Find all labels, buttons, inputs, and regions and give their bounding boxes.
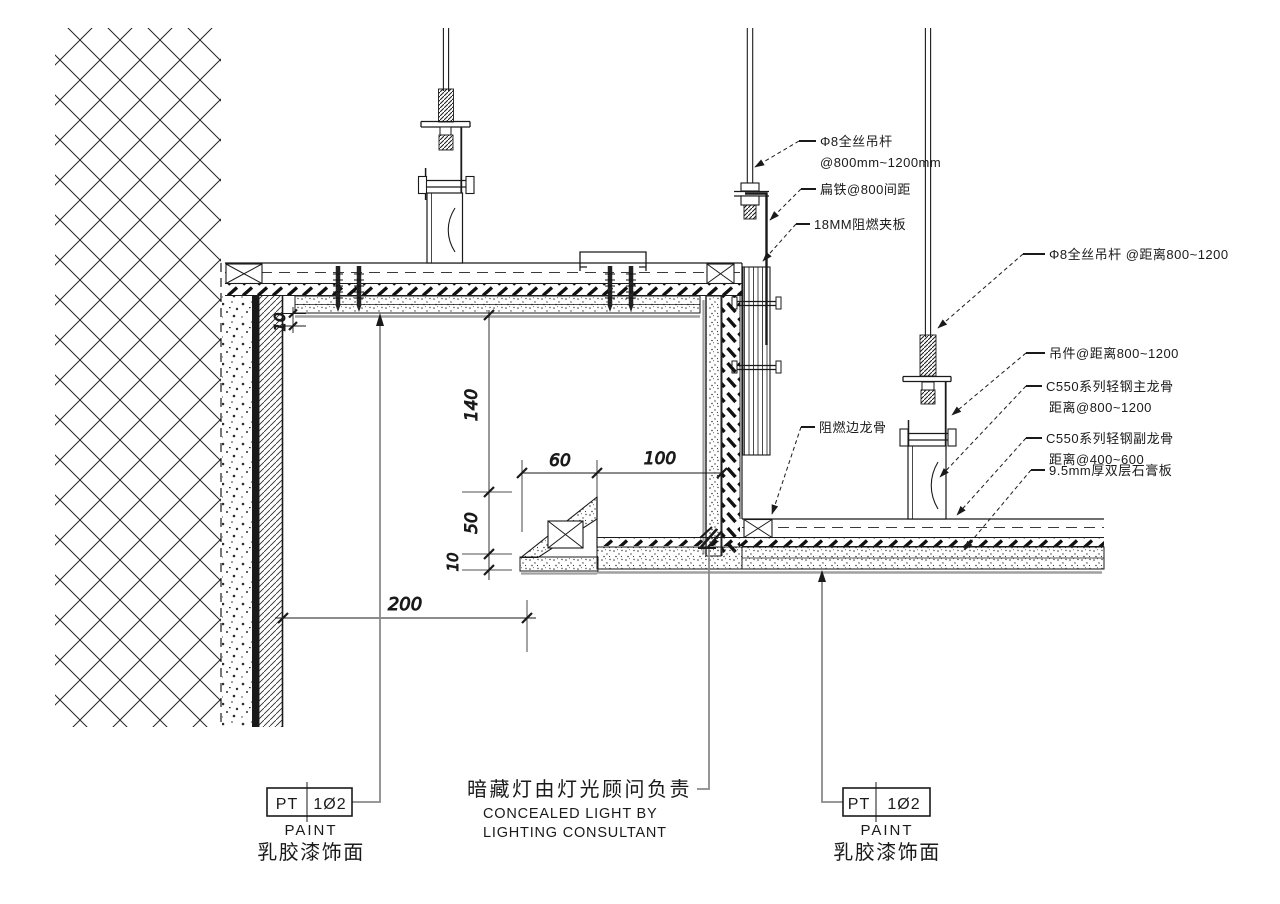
drawing-canvas: 10 140 50 10 60 100 200 — [0, 0, 1280, 904]
render-layer — [259, 296, 282, 727]
ceiling-detail-drawing: 10 140 50 10 60 100 200 — [0, 0, 1280, 904]
plaster-layer — [222, 296, 252, 727]
tag-leader — [822, 582, 843, 802]
note-en-2: LIGHTING CONSULTANT — [483, 825, 667, 841]
tag-label-en: PAINT — [284, 822, 337, 839]
shelf-board — [597, 547, 742, 569]
furring-keel-row — [225, 284, 742, 295]
tag-label-cn: 乳胶漆饰面 — [833, 841, 941, 864]
dim-text-10: 10 — [444, 552, 462, 571]
plywood-panel — [743, 267, 770, 455]
callout-text: C550系列轻钢副龙骨 — [1046, 431, 1174, 446]
callout-text: 18MM阻燃夹板 — [814, 217, 906, 232]
bulkhead-board — [706, 296, 721, 556]
callout-rod-right: Φ8全丝吊杆 @距离800~1200 — [938, 247, 1229, 328]
callout-text: 阻燃边龙骨 — [819, 420, 887, 435]
thread-stub — [439, 135, 453, 150]
callout-text: 距离@800~1200 — [1049, 400, 1152, 415]
thread-stub — [921, 390, 935, 404]
threaded-section — [920, 335, 936, 376]
dimensions: 10 140 50 10 60 100 200 — [271, 307, 727, 652]
dim-chain-vertical: 140 50 10 — [444, 310, 512, 580]
callout-plywood: 18MM阻燃夹板 — [763, 217, 906, 261]
edge-blocking-left — [226, 264, 262, 284]
edge-blocking-corner — [744, 520, 772, 538]
callout-text: 9.5mm厚双层石膏板 — [1049, 463, 1172, 478]
callout-edge-keel: 阻燃边龙骨 — [772, 420, 887, 514]
callouts: Φ8全丝吊杆 @800mm~1200mm 扁铁@800间距 18MM阻燃夹板 Φ… — [755, 134, 1229, 550]
shelf-keel-row — [600, 538, 742, 546]
main-keel-section — [580, 252, 646, 271]
nut-lower — [741, 196, 759, 205]
upper-ceiling — [225, 252, 742, 317]
masonry-hatch — [55, 28, 221, 727]
callout-flat-iron: 扁铁@800间距 — [770, 182, 911, 220]
callout-text: @800mm~1200mm — [820, 155, 941, 170]
dim-text-60: 60 — [549, 451, 571, 471]
note-leader — [697, 549, 709, 789]
dim-text: 10 — [271, 312, 289, 331]
threaded-section — [439, 89, 454, 122]
tag-label-en: PAINT — [860, 822, 913, 839]
bolt-nut — [466, 177, 474, 194]
main-keel-channel — [427, 193, 463, 263]
callout-text: 扁铁@800间距 — [820, 182, 911, 197]
bracket-plate — [903, 377, 951, 382]
bolt-head — [900, 429, 908, 446]
bolt-nut — [948, 429, 956, 446]
dim-text-50: 50 — [462, 512, 482, 534]
membrane-layer — [252, 296, 259, 727]
thread-stub — [744, 205, 756, 219]
hanger-rod — [443, 28, 448, 91]
sub-keel-row — [742, 538, 1104, 546]
finish-tag-right: PT 1Ø2 PAINT 乳胶漆饰面 — [818, 570, 941, 864]
edge-blocking-right — [707, 264, 734, 284]
callout-text: 吊件@距离800~1200 — [1049, 346, 1179, 361]
clip-bolt — [905, 434, 950, 441]
tag-label-cn: 乳胶漆饰面 — [257, 841, 365, 864]
tag-number: 1Ø2 — [887, 796, 920, 813]
nut — [922, 382, 934, 390]
callout-text: Φ8全丝吊杆 — [820, 134, 893, 149]
tag-number: 1Ø2 — [313, 796, 346, 813]
cove-blocking — [548, 521, 583, 548]
main-keel-channel — [908, 446, 946, 519]
concealed-light-note: 暗藏灯由灯光顾问负责 CONCEALED LIGHT BY LIGHTING C… — [467, 549, 709, 841]
hanger-rod — [747, 28, 752, 186]
nut-upper — [741, 183, 759, 191]
hanger-rod — [925, 28, 930, 337]
nut — [440, 127, 451, 135]
dim-200: 200 — [275, 594, 536, 652]
tag-code: PT — [848, 796, 870, 813]
tag-leader — [352, 326, 380, 802]
note-en-1: CONCEALED LIGHT BY — [483, 806, 657, 822]
dim-text-100: 100 — [644, 449, 676, 469]
dim-text-140: 140 — [462, 389, 482, 421]
callout-rod-top: Φ8全丝吊杆 @800mm~1200mm — [755, 134, 941, 170]
tag-leader-arrow — [376, 313, 384, 326]
cove-bottom-board — [520, 557, 598, 571]
hanger-assembly-3 — [900, 28, 956, 519]
dim-text-200: 200 — [388, 594, 422, 615]
tag-code: PT — [276, 796, 298, 813]
bulkhead-edge-keel — [722, 296, 740, 556]
bulkhead — [704, 263, 743, 556]
bolt-head — [419, 177, 427, 194]
note-cn: 暗藏灯由灯光顾问负责 — [467, 778, 692, 801]
wall-section — [55, 28, 283, 727]
callout-gypsum: 9.5mm厚双层石膏板 — [964, 463, 1172, 550]
callout-text: C550系列轻钢主龙骨 — [1046, 379, 1174, 394]
hanger-assembly-1 — [419, 28, 475, 263]
dim-chain-horizontal: 60 100 — [517, 449, 727, 532]
callout-text: Φ8全丝吊杆 @距离800~1200 — [1049, 247, 1229, 262]
